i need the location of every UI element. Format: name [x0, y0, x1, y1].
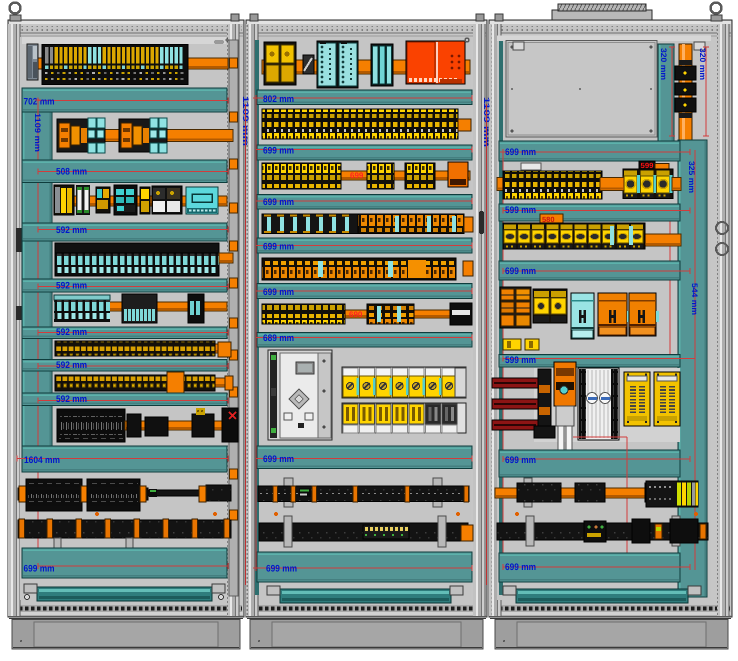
- svg-text:599 mm: 599 mm: [505, 355, 536, 366]
- svg-text:689 mm: 689 mm: [263, 333, 294, 344]
- svg-text:702 mm: 702 mm: [24, 97, 55, 108]
- svg-text:592 mm: 592 mm: [56, 394, 87, 405]
- svg-text:699 mm: 699 mm: [505, 455, 536, 466]
- svg-text:699 mm: 699 mm: [263, 146, 294, 157]
- svg-text:699 mm: 699 mm: [266, 564, 297, 575]
- svg-text:592 mm: 592 mm: [56, 360, 87, 371]
- svg-text:699: 699: [350, 171, 364, 180]
- svg-text:592 mm: 592 mm: [56, 225, 87, 236]
- svg-text:1604 mm: 1604 mm: [24, 455, 60, 466]
- svg-text:599 mm: 599 mm: [505, 205, 536, 216]
- svg-text:802 mm: 802 mm: [263, 94, 294, 105]
- svg-text:508 mm: 508 mm: [56, 167, 87, 178]
- svg-text:699 mm: 699 mm: [505, 147, 536, 158]
- svg-text:544 mm: 544 mm: [690, 283, 699, 315]
- svg-text:699 mm: 699 mm: [24, 564, 55, 575]
- svg-text:592 mm: 592 mm: [56, 281, 87, 292]
- svg-text:699 mm: 699 mm: [263, 454, 294, 465]
- svg-text:1109 mm: 1109 mm: [33, 113, 42, 152]
- svg-text:699 mm: 699 mm: [505, 562, 536, 573]
- svg-text:690: 690: [349, 310, 363, 319]
- svg-text:699 mm: 699 mm: [263, 197, 294, 208]
- svg-text:699 mm: 699 mm: [505, 266, 536, 277]
- svg-text:320 mm: 320 mm: [659, 48, 668, 80]
- svg-text:592 mm: 592 mm: [56, 327, 87, 338]
- svg-text:699 mm: 699 mm: [263, 242, 294, 253]
- svg-text:699 mm: 699 mm: [263, 287, 294, 298]
